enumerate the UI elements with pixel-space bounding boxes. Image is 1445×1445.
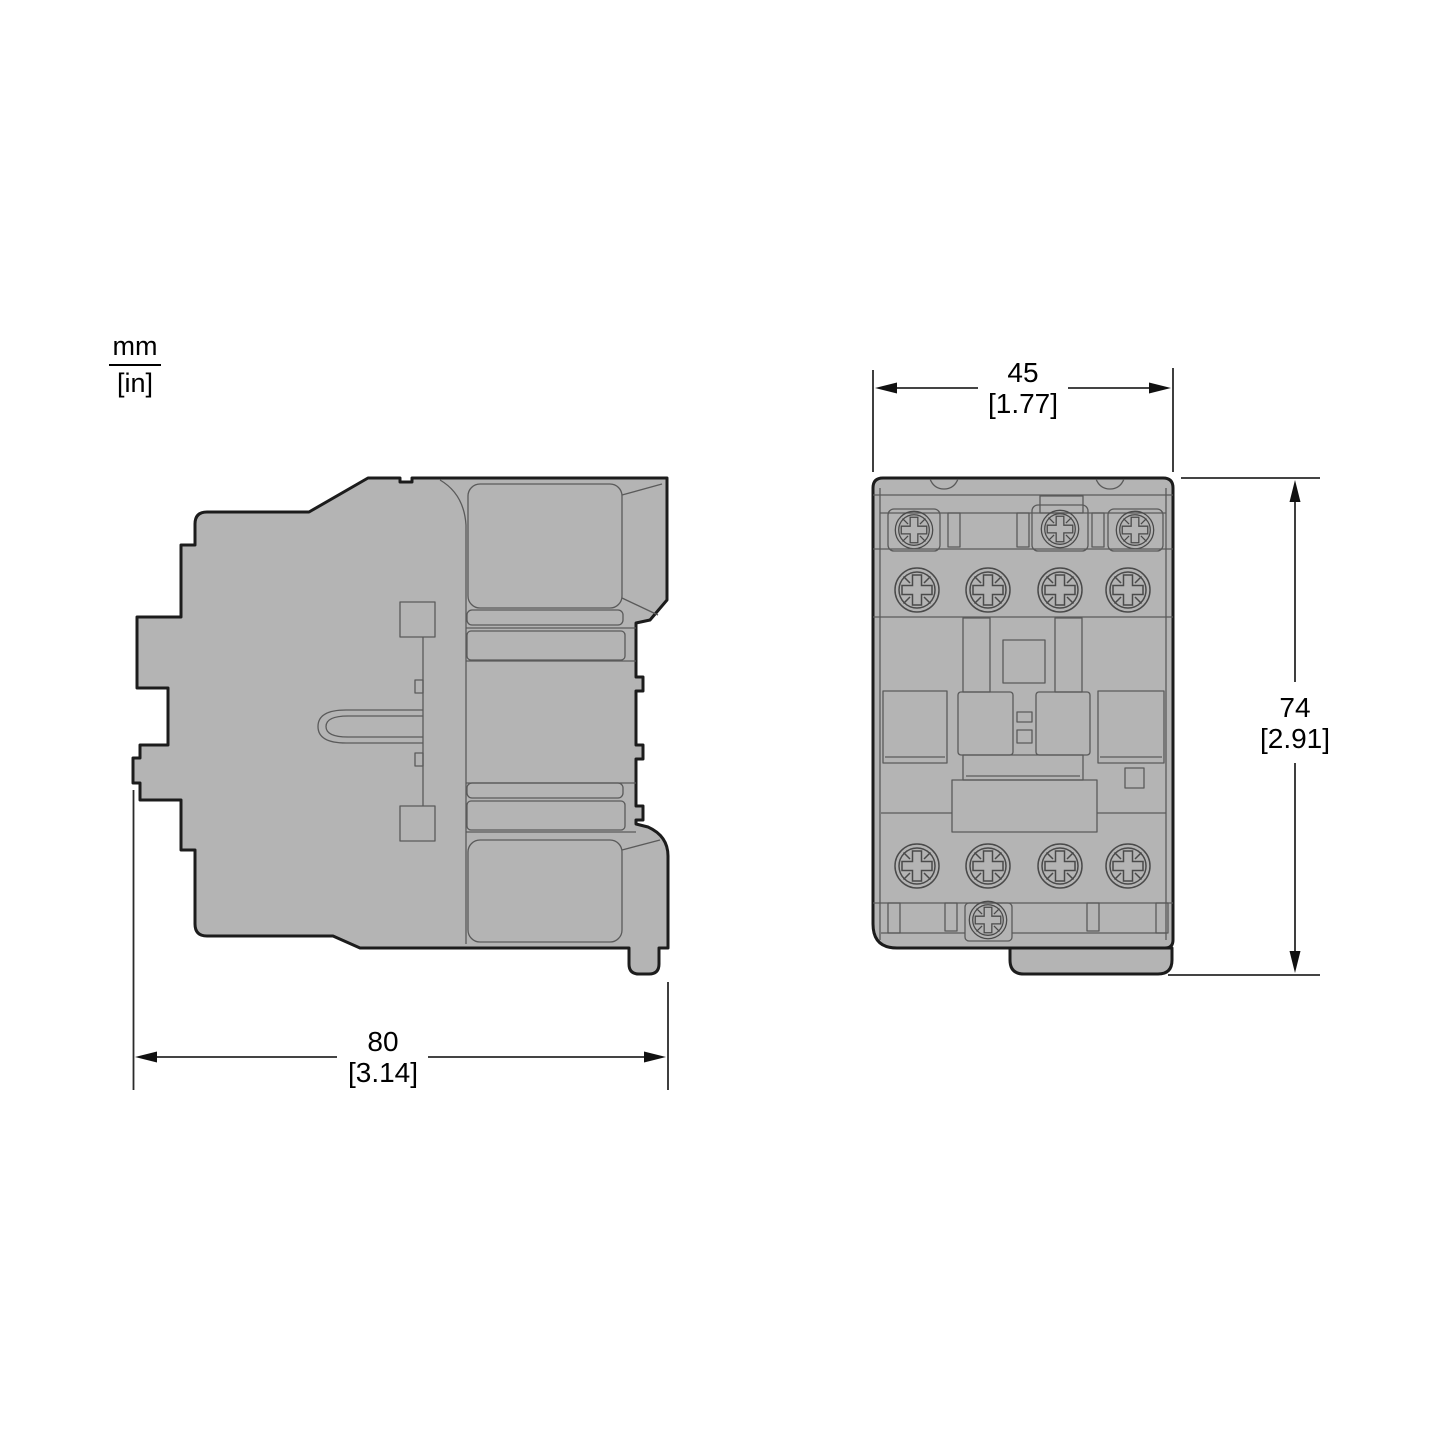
arrowhead-down — [1290, 951, 1301, 973]
front-view-bottom-flap — [1010, 948, 1172, 974]
side-depth-mm: 80 — [303, 1026, 463, 1057]
side-view-drawing — [133, 478, 668, 974]
dimension-label-front-height: 74 [2.91] — [1215, 692, 1375, 754]
front-view-drawing — [873, 478, 1173, 974]
dimension-label-side-depth: 80 [3.14] — [303, 1026, 463, 1088]
arrowhead-left — [135, 1052, 157, 1063]
unit-indicator: mm [in] — [103, 331, 167, 398]
side-depth-in: [3.14] — [303, 1057, 463, 1088]
arrowhead-right — [1149, 383, 1171, 394]
unit-mm-label: mm — [109, 331, 162, 366]
side-view-body — [133, 478, 668, 974]
dimension-label-front-width: 45 [1.77] — [943, 357, 1103, 419]
arrowhead-right — [644, 1052, 666, 1063]
unit-in-label: [in] — [103, 366, 167, 398]
front-width-in: [1.77] — [943, 388, 1103, 419]
dimension-drawing-page: mm [in] 45 [1.77] 74 [2.91] 80 [3.14] — [0, 0, 1445, 1445]
front-height-mm: 74 — [1215, 692, 1375, 723]
front-width-mm: 45 — [943, 357, 1103, 388]
arrowhead-up — [1290, 480, 1301, 502]
front-height-in: [2.91] — [1215, 723, 1375, 754]
arrowhead-left — [875, 383, 897, 394]
